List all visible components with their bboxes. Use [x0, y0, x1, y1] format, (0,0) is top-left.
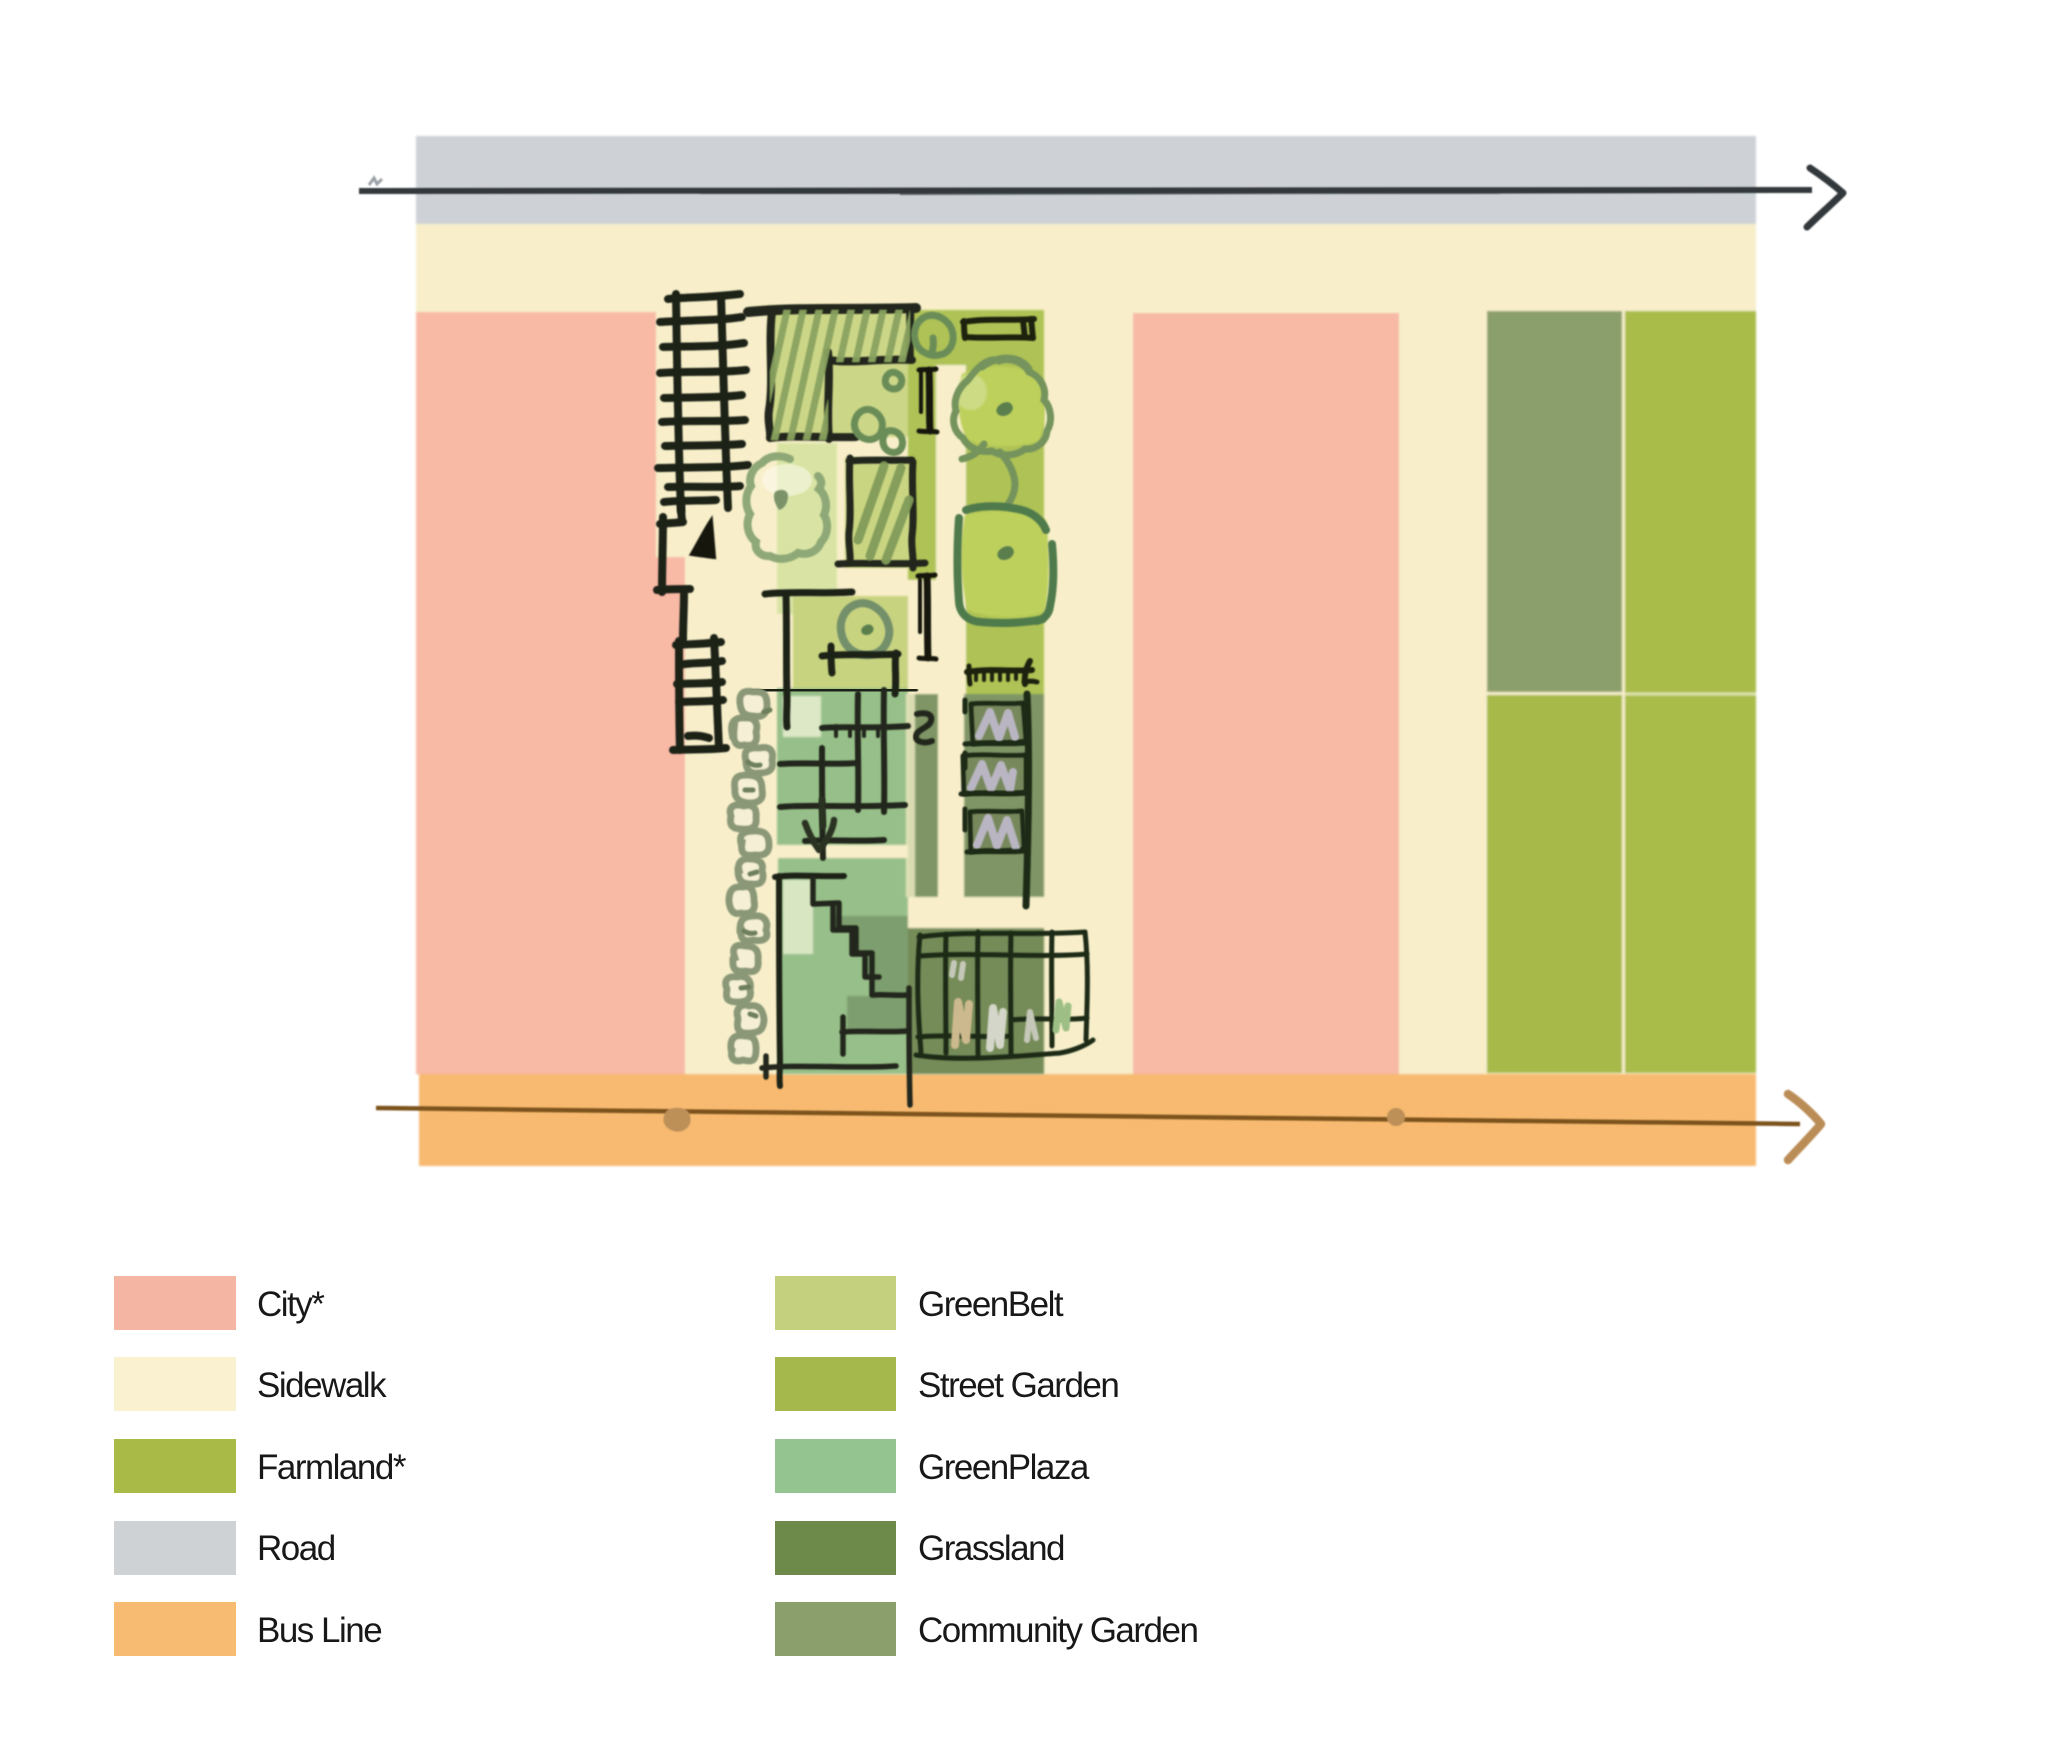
svg-text:Sidewalk: Sidewalk — [257, 1366, 387, 1405]
svg-text:Street Garden: Street Garden — [918, 1366, 1118, 1405]
svg-text:Grassland: Grassland — [918, 1529, 1064, 1568]
svg-text:City*: City* — [257, 1285, 325, 1324]
svg-text:Farmland*: Farmland* — [257, 1448, 407, 1487]
svg-text:GreenBelt: GreenBelt — [918, 1285, 1064, 1324]
svg-text:Road: Road — [257, 1529, 335, 1568]
svg-text:Bus Line: Bus Line — [257, 1611, 381, 1650]
svg-text:GreenPlaza: GreenPlaza — [918, 1448, 1090, 1487]
svg-text:Community Garden: Community Garden — [918, 1611, 1197, 1650]
